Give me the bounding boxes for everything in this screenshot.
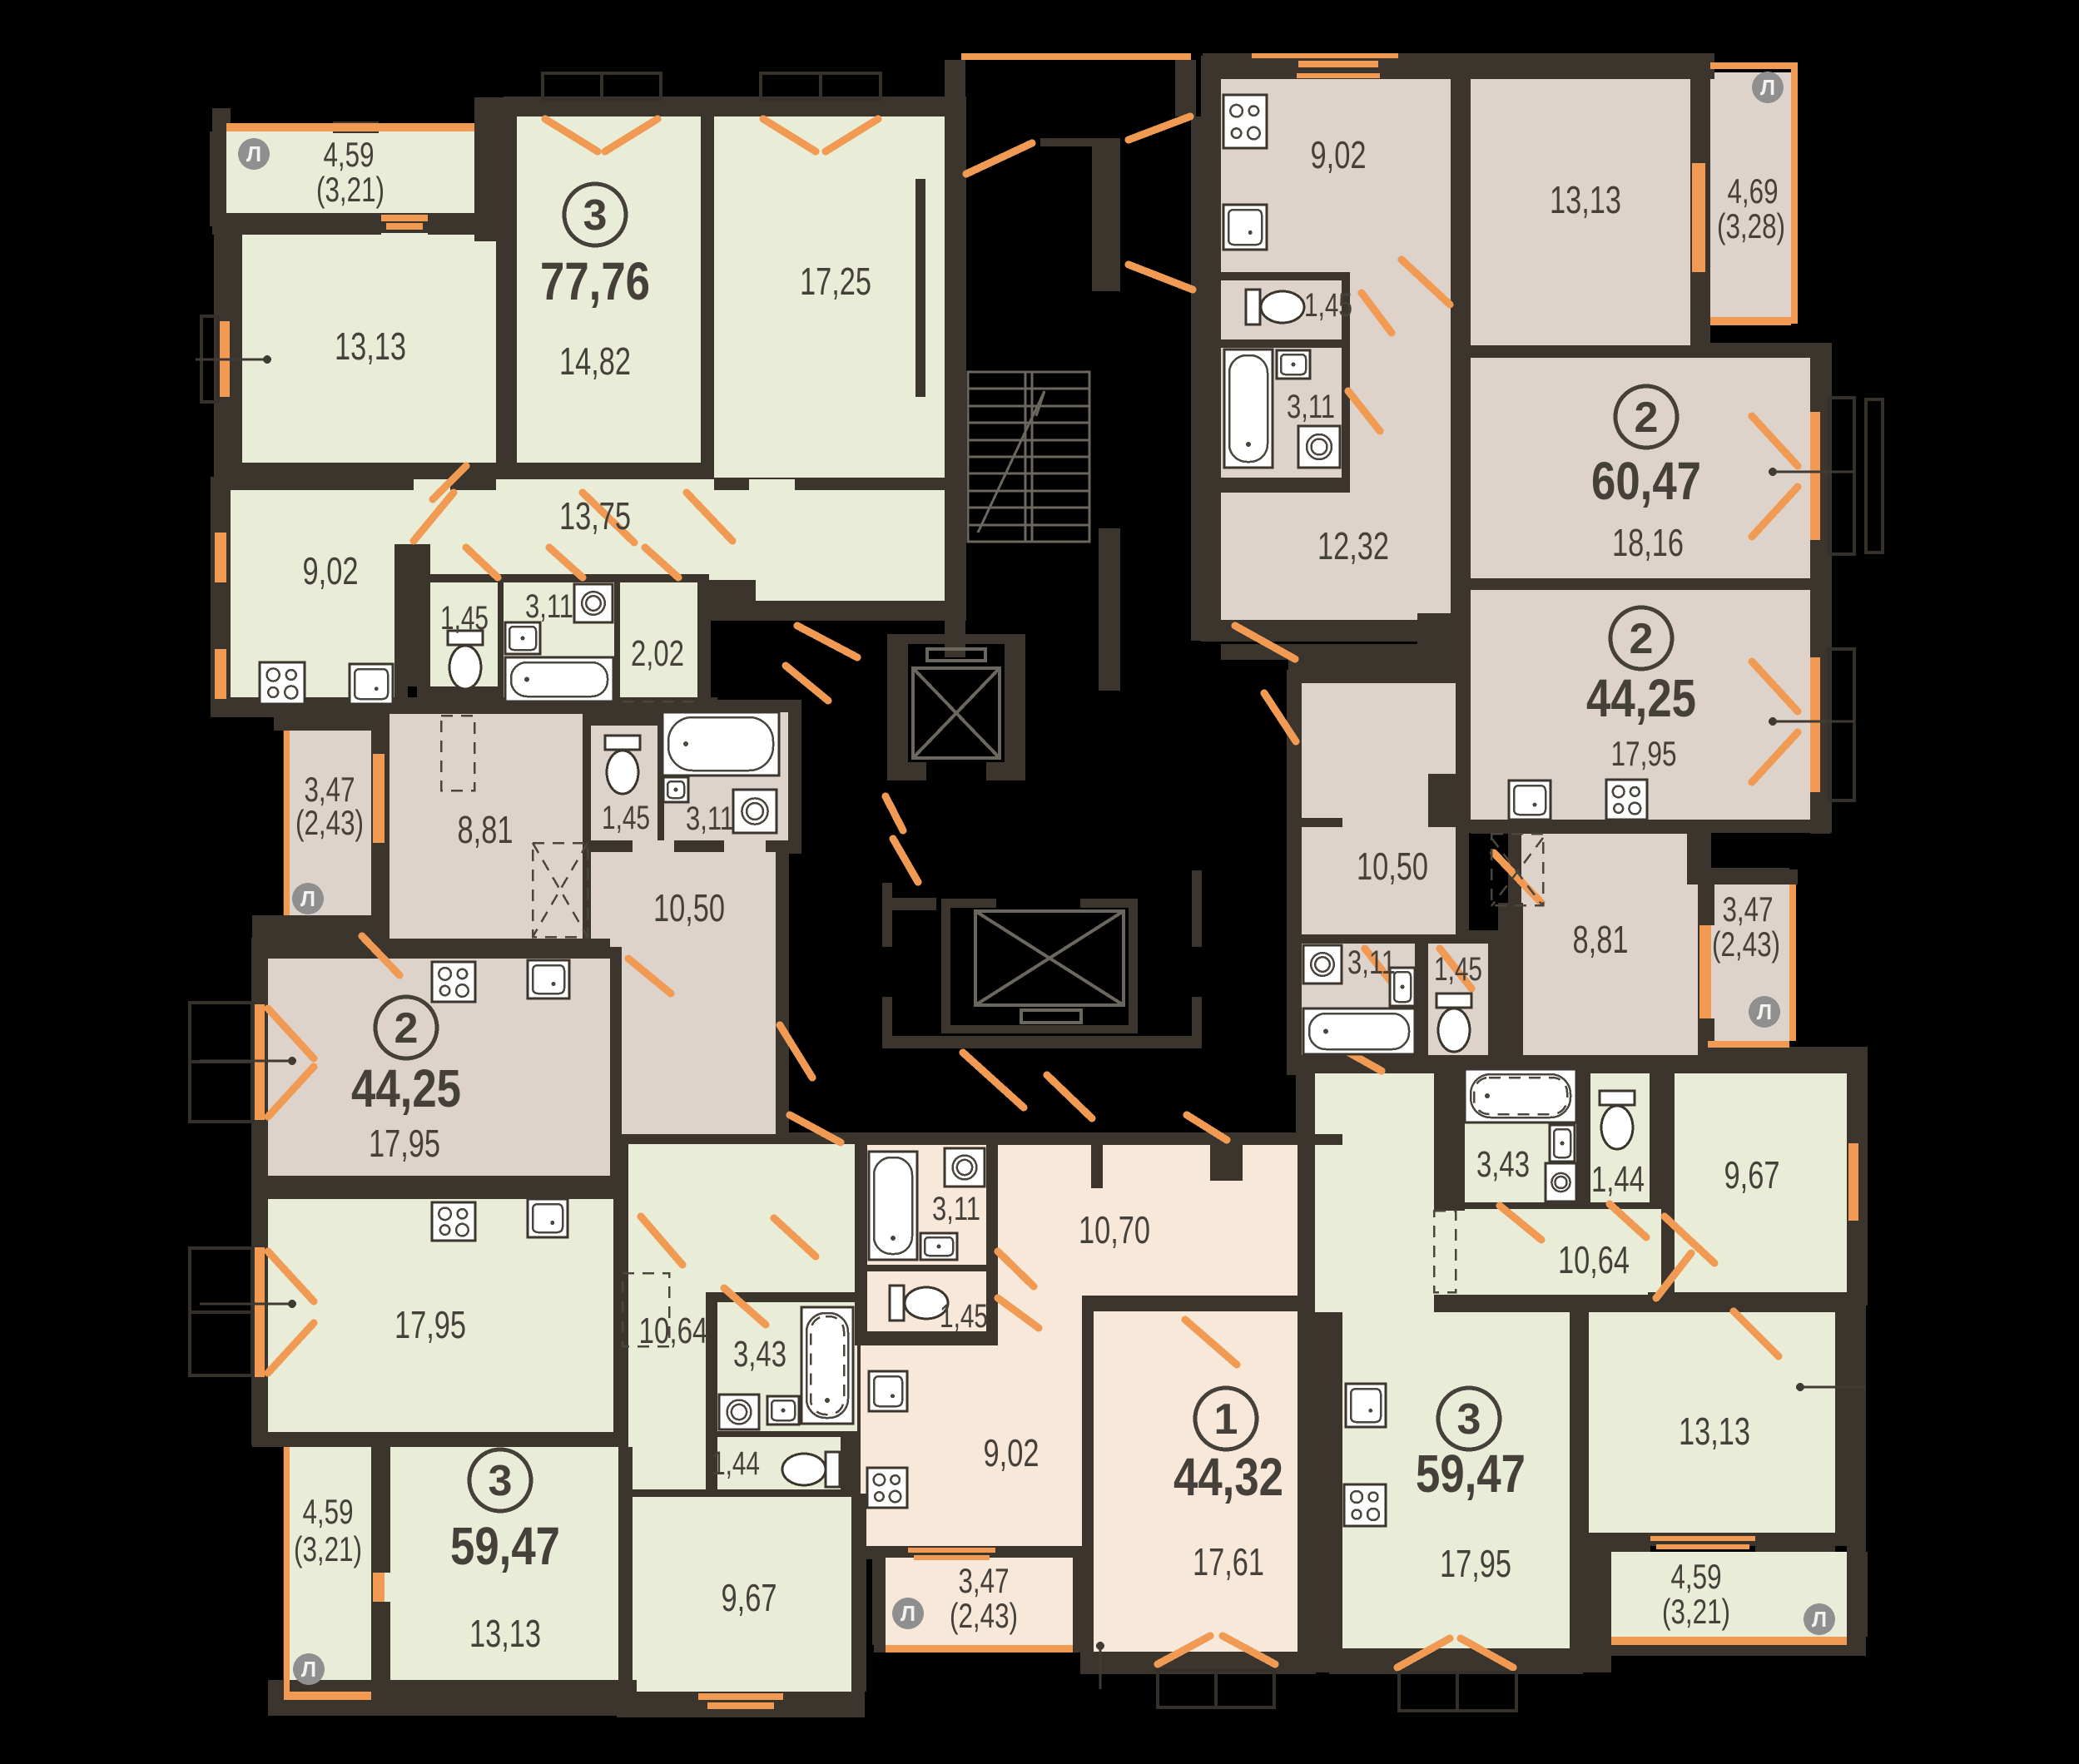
svg-text:1,45: 1,45 — [440, 600, 489, 637]
svg-text:9,02: 9,02 — [303, 549, 359, 592]
svg-text:1,45: 1,45 — [602, 800, 650, 836]
svg-text:4,59: 4,59 — [303, 1492, 354, 1531]
svg-text:(3,21): (3,21) — [294, 1529, 362, 1568]
svg-text:1,45: 1,45 — [1304, 287, 1352, 324]
svg-text:1,44: 1,44 — [712, 1445, 760, 1482]
svg-text:10,70: 10,70 — [1079, 1208, 1150, 1251]
svg-text:14,82: 14,82 — [559, 339, 631, 383]
svg-text:Л: Л — [1812, 1607, 1827, 1632]
svg-text:59,47: 59,47 — [1416, 1444, 1526, 1504]
svg-text:Л: Л — [901, 1601, 915, 1626]
svg-text:8,81: 8,81 — [458, 808, 514, 851]
svg-text:10,64: 10,64 — [639, 1311, 708, 1351]
svg-text:9,67: 9,67 — [722, 1576, 777, 1619]
svg-text:Л: Л — [246, 141, 261, 166]
svg-text:17,25: 17,25 — [800, 260, 871, 303]
svg-text:(3,28): (3,28) — [1717, 206, 1785, 245]
svg-text:60,47: 60,47 — [1591, 451, 1701, 511]
svg-text:3,43: 3,43 — [733, 1334, 786, 1375]
svg-text:3,47: 3,47 — [1723, 889, 1774, 929]
svg-text:2: 2 — [394, 1004, 419, 1053]
svg-text:77,76: 77,76 — [540, 251, 650, 311]
svg-text:4,59: 4,59 — [324, 135, 375, 174]
svg-text:13,13: 13,13 — [1679, 1410, 1750, 1453]
svg-text:17,61: 17,61 — [1193, 1540, 1264, 1583]
svg-text:3: 3 — [1457, 1395, 1481, 1444]
svg-text:3: 3 — [489, 1457, 513, 1505]
svg-text:3,11: 3,11 — [1347, 944, 1396, 981]
svg-text:17,95: 17,95 — [369, 1122, 440, 1165]
svg-text:18,16: 18,16 — [1612, 521, 1684, 564]
svg-text:(2,43): (2,43) — [1712, 924, 1780, 964]
svg-text:44,25: 44,25 — [1586, 668, 1696, 728]
svg-text:(3,21): (3,21) — [1662, 1592, 1730, 1631]
svg-text:Л: Л — [1760, 75, 1775, 100]
svg-text:4,59: 4,59 — [1671, 1557, 1722, 1596]
svg-text:4,69: 4,69 — [1728, 171, 1779, 211]
svg-text:59,47: 59,47 — [450, 1516, 560, 1576]
svg-text:8,81: 8,81 — [1573, 918, 1629, 961]
svg-text:17,95: 17,95 — [394, 1303, 466, 1346]
svg-text:(2,43): (2,43) — [950, 1596, 1018, 1635]
svg-text:(3,21): (3,21) — [316, 170, 385, 209]
svg-text:1,45: 1,45 — [940, 1298, 988, 1335]
svg-text:2,02: 2,02 — [631, 633, 684, 674]
svg-text:1,44: 1,44 — [1591, 1159, 1645, 1200]
svg-text:17,95: 17,95 — [1611, 734, 1677, 773]
svg-text:44,32: 44,32 — [1173, 1447, 1283, 1507]
svg-text:(2,43): (2,43) — [295, 803, 364, 842]
svg-text:9,67: 9,67 — [1724, 1153, 1780, 1197]
svg-text:3: 3 — [583, 191, 608, 240]
svg-text:10,64: 10,64 — [1558, 1238, 1630, 1281]
svg-text:10,50: 10,50 — [1357, 845, 1428, 888]
svg-text:2: 2 — [1630, 615, 1654, 663]
svg-text:10,50: 10,50 — [653, 886, 725, 929]
svg-text:17,95: 17,95 — [1440, 1542, 1511, 1585]
svg-text:3,11: 3,11 — [525, 588, 573, 625]
svg-text:3,47: 3,47 — [959, 1561, 1010, 1600]
svg-text:13,75: 13,75 — [559, 494, 631, 538]
svg-text:Л: Л — [300, 886, 315, 911]
svg-text:Л: Л — [1757, 999, 1772, 1024]
svg-text:3,43: 3,43 — [1476, 1144, 1530, 1185]
svg-text:44,25: 44,25 — [351, 1058, 461, 1118]
svg-text:3,11: 3,11 — [686, 800, 734, 837]
svg-text:13,13: 13,13 — [335, 325, 406, 368]
svg-text:2: 2 — [1635, 394, 1659, 442]
svg-text:9,02: 9,02 — [1311, 133, 1367, 176]
svg-text:1,45: 1,45 — [1434, 951, 1482, 988]
svg-text:Л: Л — [301, 1657, 316, 1682]
svg-text:13,13: 13,13 — [469, 1612, 541, 1655]
svg-text:12,32: 12,32 — [1317, 524, 1389, 567]
svg-text:13,13: 13,13 — [1550, 178, 1621, 221]
svg-text:3,11: 3,11 — [932, 1191, 980, 1227]
svg-text:1: 1 — [1214, 1395, 1238, 1444]
svg-text:9,02: 9,02 — [984, 1431, 1039, 1474]
svg-text:3,11: 3,11 — [1287, 389, 1335, 425]
